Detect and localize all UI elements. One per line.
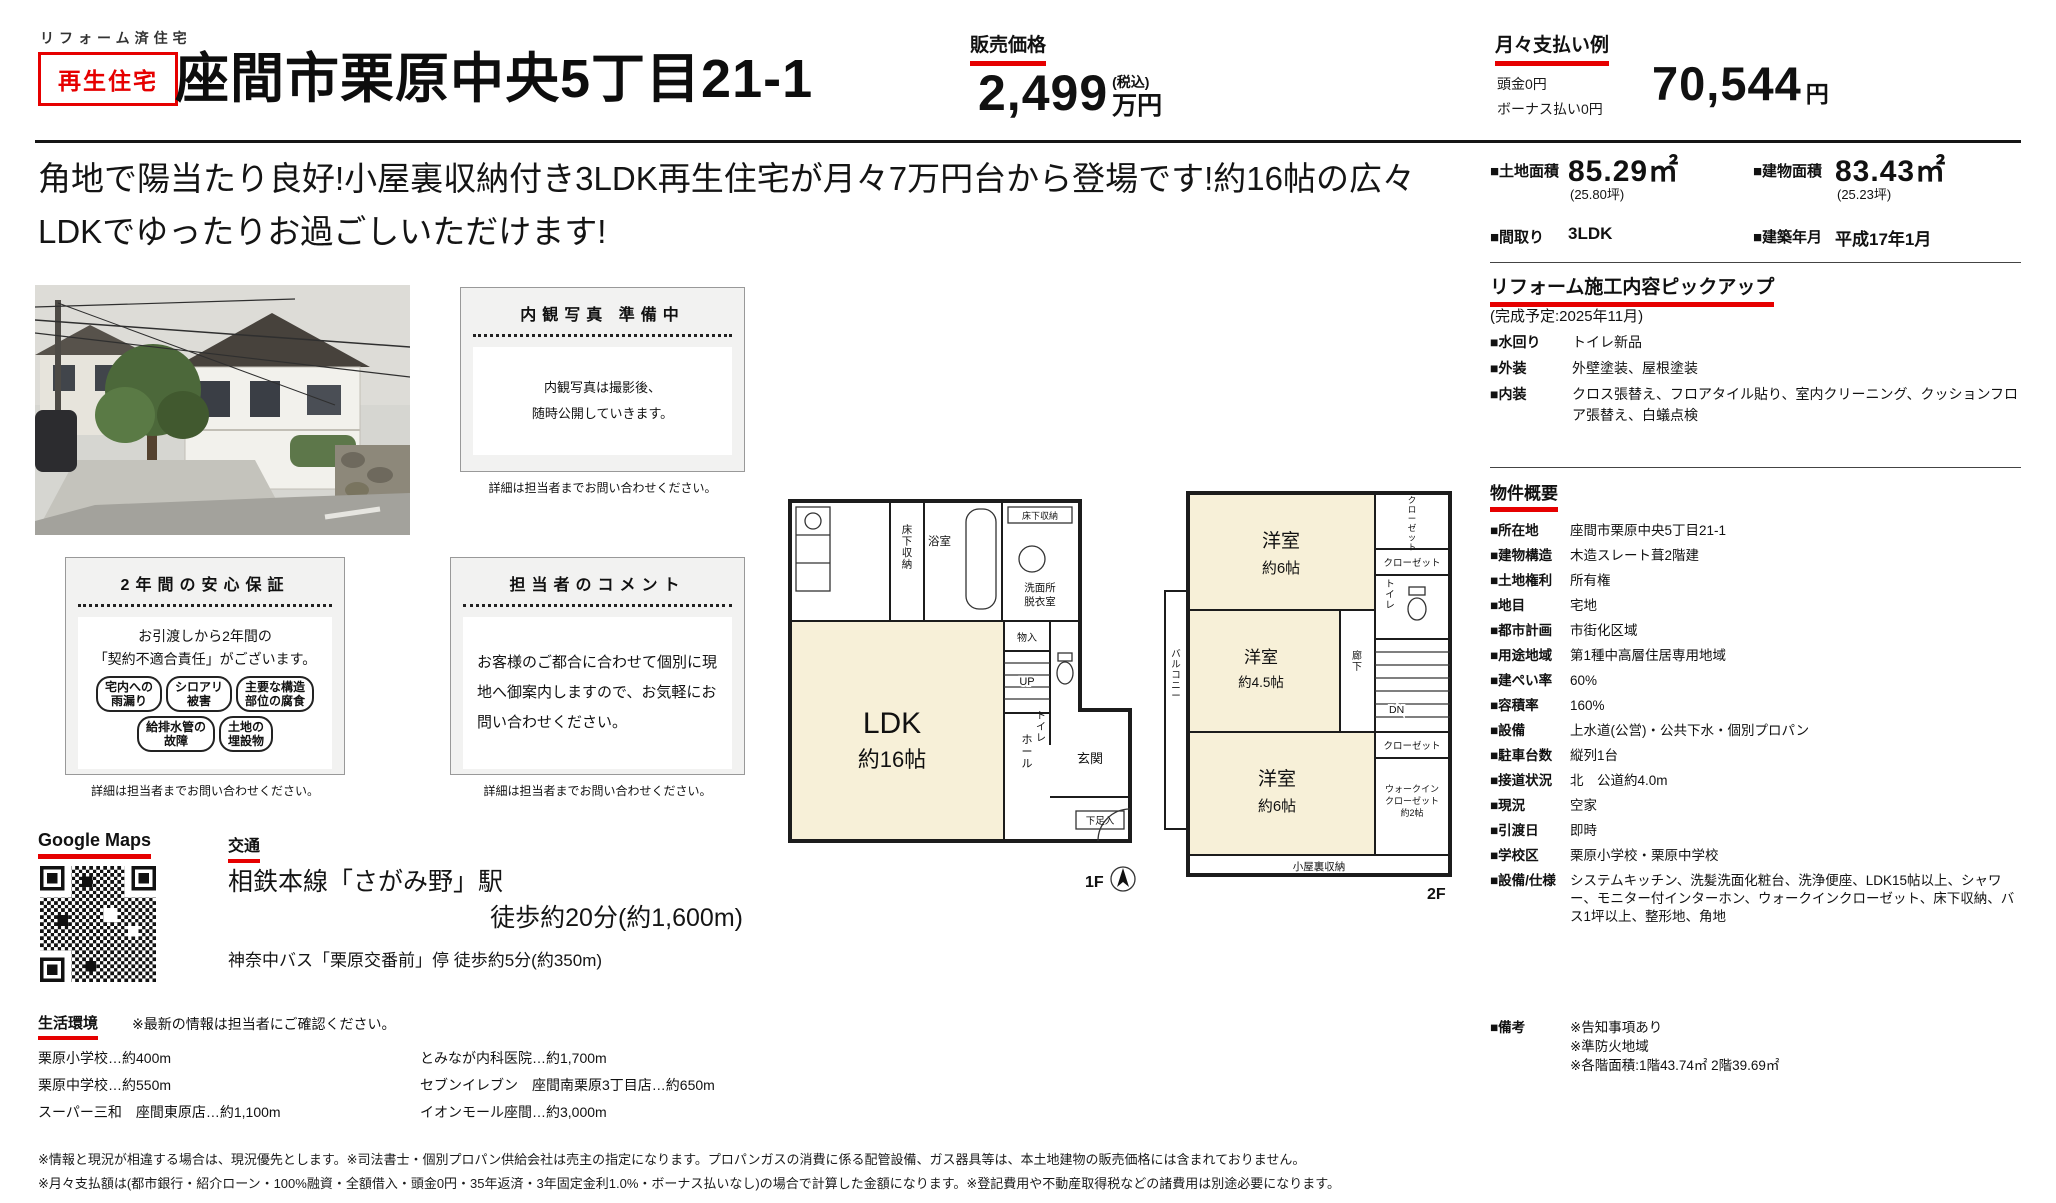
warranty-box-caption: 詳細は担当者までお問い合わせください。	[65, 782, 345, 799]
monthly-unit: 円	[1806, 78, 1829, 110]
warranty-box-title: 2年間の安心保証	[78, 571, 332, 595]
reform-item-label: ■外装	[1490, 358, 1572, 379]
access-train-line1: 相鉄本線「さがみ野」駅	[228, 862, 503, 898]
access-train-line2: 徒歩約20分(約1,600m)	[228, 898, 743, 934]
outline-item: ■土地権利 所有権	[1490, 572, 2021, 590]
remarks-value: ※告知事項あり ※準防火地域 ※各階面積:1階43.74㎡ 2階39.69㎡	[1570, 1018, 2021, 1075]
environment-item: とみなが内科医院…約1,700m	[420, 1045, 820, 1072]
stairs-down-label: DN	[1389, 704, 1404, 716]
interior-photo-placeholder-box: 内観写真 準備中 内観写真は撮影後、 随時公開していきます。	[460, 287, 745, 472]
qr-code	[40, 866, 156, 982]
washing-machine-icon	[1019, 546, 1045, 572]
bedroom-6a-label-line2: 約6帖	[1262, 560, 1300, 577]
building-area-tsubo: (25.23坪)	[1837, 184, 1891, 203]
google-maps-label: Google Maps	[38, 830, 151, 859]
outline-item-label: ■設備/仕様	[1490, 872, 1570, 926]
outline-item-value: 栗原小学校・栗原中学校	[1570, 847, 2021, 865]
price-tax-note: (税込)	[1112, 72, 1149, 92]
built-date-value: 平成17年1月	[1835, 225, 1931, 250]
outline-item-value: 北 公道約4.0m	[1570, 772, 2021, 790]
kitchen-counter-icon	[796, 507, 830, 591]
floor-1f-label: 1F	[1085, 874, 1104, 891]
outline-item-value: システムキッチン、洗髪洗面化粧台、洗浄便座、LDK15帖以上、シャワー、モニター…	[1570, 872, 2021, 926]
warranty-pill: 主要な構造 部位の腐食	[236, 676, 314, 712]
outline-item: ■引渡日 即時	[1490, 822, 2021, 840]
interior-body-line2: 随時公開していきます。	[473, 401, 732, 427]
bedroom-6b	[1188, 732, 1375, 855]
layout-label: ■間取り	[1490, 226, 1544, 247]
floorplan-1f: 床下収納 浴室 床下収納 洗面所 脱衣室 LDK 約16帖 物入 トイレ UP …	[780, 495, 1140, 905]
toilet-icon	[1057, 653, 1073, 684]
warranty-pill: 給排水管の 故障	[137, 716, 215, 752]
environment-item: スーパー三和 座間東原店…約1,100m	[38, 1099, 408, 1126]
environment-item: セブンイレブン 座間南栗原3丁目店…約650m	[420, 1072, 820, 1099]
comment-box-title: 担当者のコメント	[463, 571, 732, 595]
warranty-pill-list: 宅内への 雨漏りシロアリ 被害主要な構造 部位の腐食給排水管の 故障土地の 埋設…	[82, 676, 328, 752]
hall-label: ホール	[1022, 733, 1033, 770]
header-divider	[35, 140, 2021, 143]
reform-item: ■内装 クロス張替え、フロアタイル貼り、室内クリーニング、クッションフロア張替え…	[1490, 384, 2021, 426]
outline-item: ■設備 上水道(公営)・公共下水・個別プロパン	[1490, 722, 2021, 740]
bedroom-45	[1188, 610, 1340, 732]
outline-section-title: 物件概要	[1490, 479, 1558, 512]
bathtub-icon	[966, 509, 996, 609]
outline-item-label: ■接道状況	[1490, 772, 1570, 790]
bedroom-6a-label-line1: 洋室	[1262, 530, 1300, 552]
footer-disclaimer: ※情報と現況が相違する場合は、現況優先とします。※司法書士・個別プロパン供給会社…	[38, 1148, 1340, 1196]
outline-item-label: ■建ぺい率	[1490, 672, 1570, 690]
payment-conditions: 頭金0円 ボーナス払い0円	[1497, 72, 1603, 122]
warranty-body-line2: 「契約不適合責任」がございます。	[82, 648, 328, 671]
balcony-strip	[1165, 591, 1188, 829]
outline-item-value: 木造スレート葺2階建	[1570, 547, 2021, 565]
bonus-payment: ボーナス払い0円	[1497, 97, 1603, 122]
outline-item-value: 宅地	[1570, 597, 2021, 615]
footer-line1: ※情報と現況が相違する場合は、現況優先とします。※司法書士・個別プロパン供給会社…	[38, 1148, 1340, 1172]
wic-label-line1: ウォークイン	[1385, 784, 1439, 794]
wic-label-line3: 約2帖	[1400, 807, 1423, 818]
monthly-payment-block: 月々支払い例	[1495, 30, 1609, 66]
reform-section-title: リフォーム施工内容ピックアップ	[1490, 272, 1774, 307]
outline-item: ■地目 宅地	[1490, 597, 2021, 615]
catch-line2: LDKでゆったりお過ごしいただけます!	[38, 205, 1415, 258]
shoe-cabinet-label: 下足入	[1086, 816, 1115, 827]
outline-item: ■都市計画 市街化区域	[1490, 622, 2021, 640]
down-payment: 頭金0円	[1497, 72, 1603, 97]
outline-item-label: ■用途地域	[1490, 647, 1570, 665]
outline-item: ■現況 空家	[1490, 797, 2021, 815]
toilet-label: トイレ	[1385, 579, 1395, 611]
environment-note: ※最新の情報は担当者にご確認ください。	[132, 1014, 395, 1034]
outline-item-label: ■建物構造	[1490, 547, 1570, 565]
price-block: 販売価格 2,499 (税込) 万円	[970, 30, 1162, 120]
panel-divider	[1490, 262, 2021, 263]
outline-item: ■用途地域 第1種中高層住居専用地域	[1490, 647, 2021, 665]
environment-list-right: とみなが内科医院…約1,700mセブンイレブン 座間南栗原3丁目店…約650mイ…	[420, 1045, 820, 1126]
warranty-box-body: お引渡しから2年間の 「契約不適合責任」がございます。 宅内への 雨漏りシロアリ…	[78, 617, 332, 769]
reform-tagline: リフォーム済住宅	[40, 28, 192, 48]
dotted-divider	[473, 334, 732, 337]
reform-item-label: ■水回り	[1490, 332, 1572, 353]
outline-item-label: ■設備	[1490, 722, 1570, 740]
outline-item-value: 上水道(公営)・公共下水・個別プロパン	[1570, 722, 2021, 740]
outline-item-label: ■土地権利	[1490, 572, 1570, 590]
stairs-up-label: UP	[1019, 676, 1034, 688]
wic-label-line2: クローゼット	[1385, 795, 1439, 806]
land-area-label: ■土地面積	[1490, 160, 1559, 181]
reform-item: ■水回り トイレ新品	[1490, 332, 2021, 353]
environment-section-title: 生活環境	[38, 1012, 98, 1040]
outline-item-value: 市街化区域	[1570, 622, 2021, 640]
price-unit: 万円	[1112, 92, 1162, 120]
reform-item-label: ■内装	[1490, 384, 1572, 426]
interior-box-title: 内観写真 準備中	[473, 301, 732, 325]
environment-item: 栗原小学校…約400m	[38, 1045, 408, 1072]
rebirth-house-badge: 再生住宅	[38, 52, 178, 106]
reform-item-value: トイレ新品	[1572, 332, 2021, 353]
outline-item-label: ■所在地	[1490, 522, 1570, 540]
warranty-pill: 宅内への 雨漏り	[96, 676, 162, 712]
access-bus: 神奈中バス「栗原交番前」停 徒歩約5分(約350m)	[228, 946, 602, 971]
environment-item: イオンモール座間…約3,000m	[420, 1099, 820, 1126]
monthly-value: 70,544	[1652, 58, 1802, 110]
attic-storage-label: 小屋裏収納	[1293, 860, 1346, 873]
bedroom-6b-label-line1: 洋室	[1258, 768, 1296, 790]
toilet-label: トイレ	[1036, 711, 1046, 744]
warranty-pill: シロアリ 被害	[166, 676, 232, 712]
reform-item-value: クロス張替え、フロアタイル貼り、室内クリーニング、クッションフロア張替え、白蟻点…	[1572, 384, 2021, 426]
warranty-body-line1: お引渡しから2年間の	[82, 625, 328, 648]
comment-box-body: お客様のご都合に合わせて個別に現地へ御案内しますので、お気軽にお問い合わせくださ…	[463, 617, 732, 769]
built-date-label: ■建築年月	[1753, 226, 1822, 247]
outline-item-value: 即時	[1570, 822, 2021, 840]
environment-list-left: 栗原小学校…約400m栗原中学校…約550mスーパー三和 座間東原店…約1,10…	[38, 1045, 408, 1126]
interior-box-body: 内観写真は撮影後、 随時公開していきます。	[473, 347, 732, 455]
closet-b-label: クローゼット	[1383, 740, 1440, 752]
building-area-label: ■建物面積	[1753, 160, 1822, 181]
entrance-label: 玄関	[1077, 751, 1103, 766]
reform-item-value: 外壁塗装、屋根塗装	[1572, 358, 2021, 379]
monthly-label: 月々支払い例	[1495, 30, 1609, 66]
outline-item: ■建物構造 木造スレート葺2階建	[1490, 547, 2021, 565]
monthly-amount: 70,544 円	[1652, 58, 1829, 110]
page-title: 座間市栗原中央5丁目21-1	[175, 34, 813, 113]
outline-item-label: ■引渡日	[1490, 822, 1570, 840]
underfloor-storage-label: 床下収納	[902, 523, 913, 571]
outline-item: ■所在地 座間市栗原中央5丁目21-1	[1490, 522, 2021, 540]
floor-2f-label: 2F	[1427, 886, 1446, 903]
stairs-icon	[1375, 652, 1450, 717]
catch-line1: 角地で陽当たり良好!小屋裏収納付き3LDK再生住宅が月々7万円台から登場です!約…	[38, 152, 1415, 205]
agent-comment-box: 担当者のコメント お客様のご都合に合わせて個別に現地へ御案内しますので、お気軽に…	[450, 557, 745, 775]
bedroom-6b-label-line2: 約6帖	[1258, 798, 1296, 815]
reform-item-list: ■水回り トイレ新品 ■外装 外壁塗装、屋根塗装 ■内装 クロス張替え、フロアタ…	[1490, 332, 2021, 431]
outline-item-label: ■都市計画	[1490, 622, 1570, 640]
outline-item-value: 空家	[1570, 797, 2021, 815]
storage-label: 物入	[1017, 631, 1037, 644]
outline-item: ■学校区 栗原小学校・栗原中学校	[1490, 847, 2021, 865]
dotted-divider	[463, 604, 732, 607]
outline-item: ■接道状況 北 公道約4.0m	[1490, 772, 2021, 790]
outline-item-label: ■学校区	[1490, 847, 1570, 865]
bedroom-45-label-line2: 約4.5帖	[1238, 675, 1284, 690]
outline-item-value: 縦列1台	[1570, 747, 2021, 765]
outline-item-value: 160%	[1570, 697, 2021, 715]
outline-item: ■駐車台数 縦列1台	[1490, 747, 2021, 765]
bath-label: 浴室	[928, 534, 951, 548]
price-label: 販売価格	[970, 30, 1046, 66]
closet-a-label: クローゼット	[1383, 557, 1440, 569]
dotted-divider	[78, 604, 332, 607]
underfloor-storage-small-label: 床下収納	[1022, 510, 1058, 521]
toilet-icon	[1408, 587, 1426, 620]
bedroom-45-label-line1: 洋室	[1244, 648, 1278, 667]
footer-line2: ※月々支払額は(都市銀行・紹介ローン・100%融資・全額借入・頭金0円・35年返…	[38, 1172, 1340, 1196]
ldk-label-line1: LDK	[863, 707, 921, 740]
reform-schedule: (完成予定:2025年11月)	[1490, 305, 1643, 326]
outline-item-label: ■地目	[1490, 597, 1570, 615]
outline-item-label: ■容積率	[1490, 697, 1570, 715]
floorplan-2f: 洋室 約6帖 クローゼット クローゼット トイレ 洋室 約4.5帖 廊下 DN …	[1155, 487, 1485, 917]
remarks-label: ■備考	[1490, 1018, 1570, 1075]
outline-item-value: 60%	[1570, 672, 2021, 690]
exterior-photo	[35, 285, 410, 535]
land-area-tsubo: (25.80坪)	[1570, 184, 1624, 203]
closet-tall-label: クローゼット	[1408, 495, 1417, 552]
outline-item-value: 第1種中高層住居専用地域	[1570, 647, 2021, 665]
outline-item: ■容積率 160%	[1490, 697, 2021, 715]
catch-copy: 角地で陽当たり良好!小屋裏収納付き3LDK再生住宅が月々7万円台から登場です!約…	[38, 152, 1415, 258]
outline-item-label: ■駐車台数	[1490, 747, 1570, 765]
hallway-label: 廊下	[1352, 649, 1362, 673]
price-value: 2,499	[978, 66, 1108, 120]
warranty-box: 2年間の安心保証 お引渡しから2年間の 「契約不適合責任」がございます。 宅内へ…	[65, 557, 345, 775]
reform-item: ■外装 外壁塗装、屋根塗装	[1490, 358, 2021, 379]
panel-divider	[1490, 467, 2021, 468]
flyer-sheet: リフォーム済住宅 再生住宅 座間市栗原中央5丁目21-1 販売価格 2,499 …	[0, 0, 2056, 1203]
environment-item: 栗原中学校…約550m	[38, 1072, 408, 1099]
interior-box-caption: 詳細は担当者までお問い合わせください。	[460, 479, 745, 496]
washroom-label-line1: 洗面所	[1024, 582, 1056, 594]
comment-box-caption: 詳細は担当者までお問い合わせください。	[450, 782, 745, 799]
layout-value: 3LDK	[1568, 224, 1612, 244]
outline-item-list: ■所在地 座間市栗原中央5丁目21-1 ■建物構造 木造スレート葺2階建 ■土地…	[1490, 522, 2021, 933]
outline-item-value: 座間市栗原中央5丁目21-1	[1570, 522, 2021, 540]
interior-body-line1: 内観写真は撮影後、	[473, 375, 732, 401]
ldk-label-line2: 約16帖	[858, 747, 926, 772]
compass-icon	[1111, 867, 1135, 891]
outline-item-label: ■現況	[1490, 797, 1570, 815]
remarks-row: ■備考 ※告知事項あり ※準防火地域 ※各階面積:1階43.74㎡ 2階39.6…	[1490, 1018, 2021, 1075]
outline-item-value: 所有権	[1570, 572, 2021, 590]
outline-item: ■設備/仕様 システムキッチン、洗髪洗面化粧台、洗浄便座、LDK15帖以上、シャ…	[1490, 872, 2021, 926]
outline-item: ■建ぺい率 60%	[1490, 672, 2021, 690]
access-section-title: 交通	[228, 832, 260, 863]
balcony-label: バルコニー	[1171, 649, 1181, 702]
warranty-pill: 土地の 埋設物	[219, 716, 273, 752]
washroom-label-line2: 脱衣室	[1024, 595, 1056, 608]
